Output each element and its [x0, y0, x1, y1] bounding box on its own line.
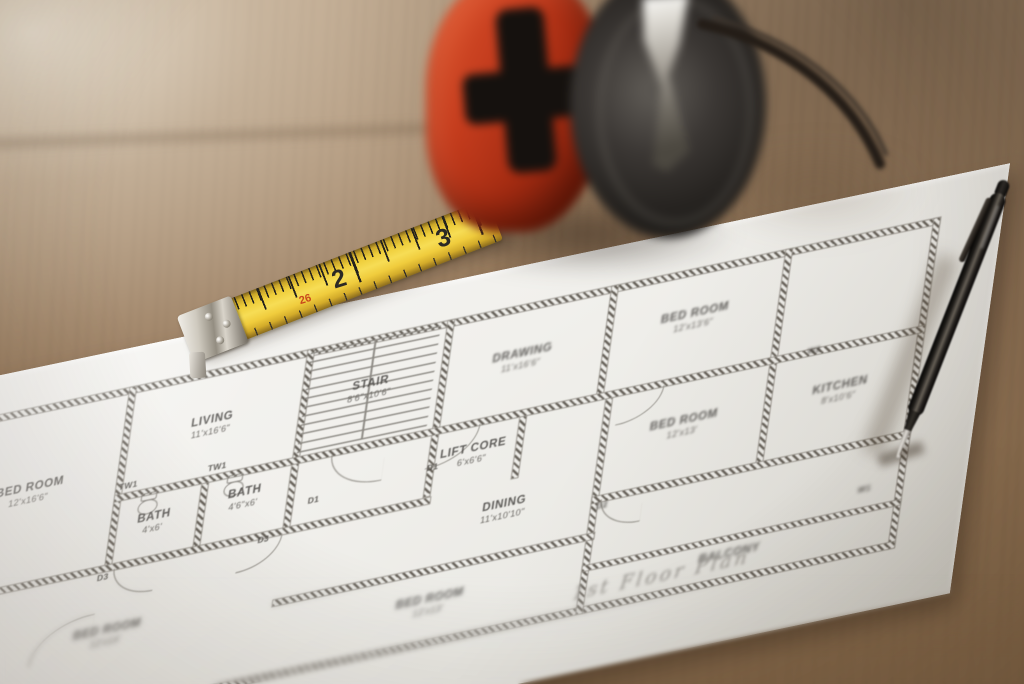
- photo-scene: BED ROOM 12'x16'6" LIVING 11'x16'6" STAI…: [0, 0, 1024, 684]
- hook-rivet: [204, 312, 214, 322]
- tape-lock-button-arm: [462, 65, 588, 125]
- hook-rivet: [215, 335, 225, 345]
- tape-strap: [640, 6, 920, 196]
- hook-rivet: [221, 319, 231, 329]
- depth-of-field-blur: [0, 574, 1024, 684]
- pen-ballpoint: [895, 454, 901, 460]
